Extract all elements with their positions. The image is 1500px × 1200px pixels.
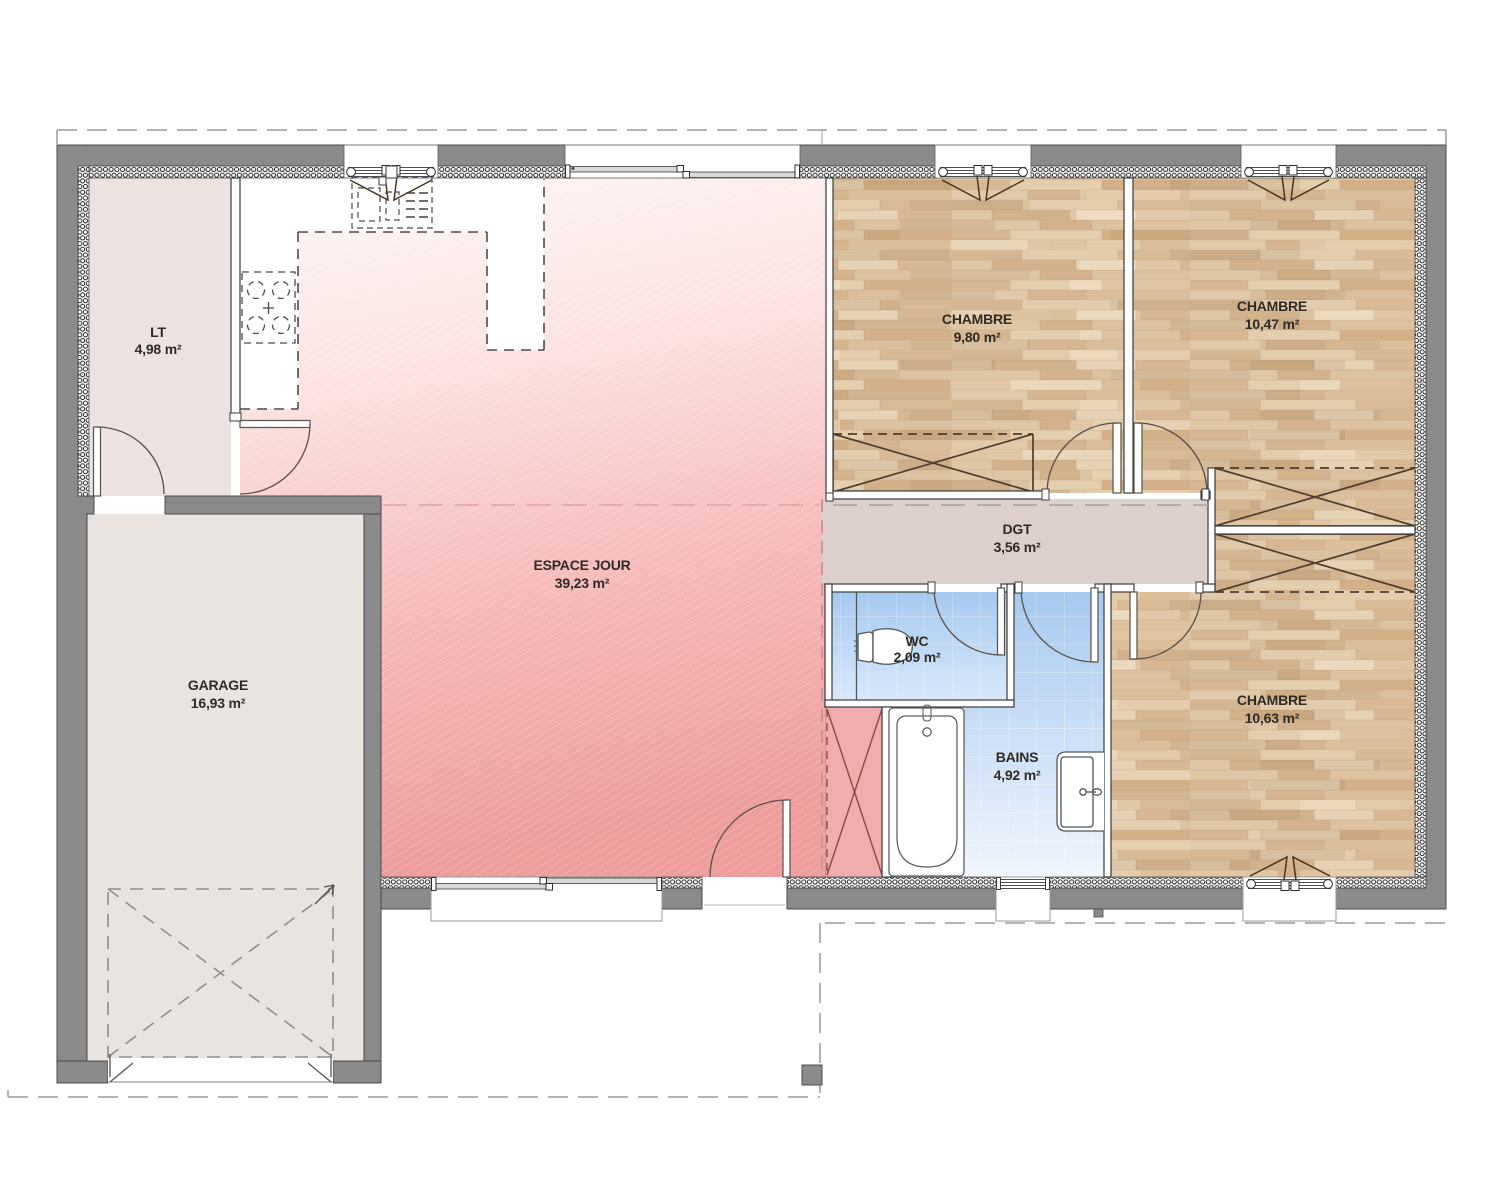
svg-text:16,93 m²: 16,93 m² <box>191 695 246 711</box>
svg-text:2,09 m²: 2,09 m² <box>894 649 941 665</box>
svg-text:CHAMBRE: CHAMBRE <box>1237 692 1307 708</box>
svg-text:4,92 m²: 4,92 m² <box>994 767 1041 783</box>
svg-text:3,56 m²: 3,56 m² <box>994 539 1041 555</box>
svg-text:39,23 m²: 39,23 m² <box>555 575 610 591</box>
svg-text:9,80 m²: 9,80 m² <box>954 329 1001 345</box>
svg-text:DGT: DGT <box>1003 521 1033 537</box>
svg-text:ESPACE JOUR: ESPACE JOUR <box>533 557 630 573</box>
svg-text:BAINS: BAINS <box>996 749 1039 765</box>
svg-text:4,98 m²: 4,98 m² <box>135 341 182 357</box>
svg-text:GARAGE: GARAGE <box>188 677 248 693</box>
svg-text:WC: WC <box>906 633 929 649</box>
svg-text:CHAMBRE: CHAMBRE <box>942 311 1012 327</box>
svg-text:10,47 m²: 10,47 m² <box>1245 316 1300 332</box>
svg-text:CHAMBRE: CHAMBRE <box>1237 298 1307 314</box>
svg-text:LT: LT <box>150 324 166 340</box>
svg-text:10,63 m²: 10,63 m² <box>1245 710 1300 726</box>
